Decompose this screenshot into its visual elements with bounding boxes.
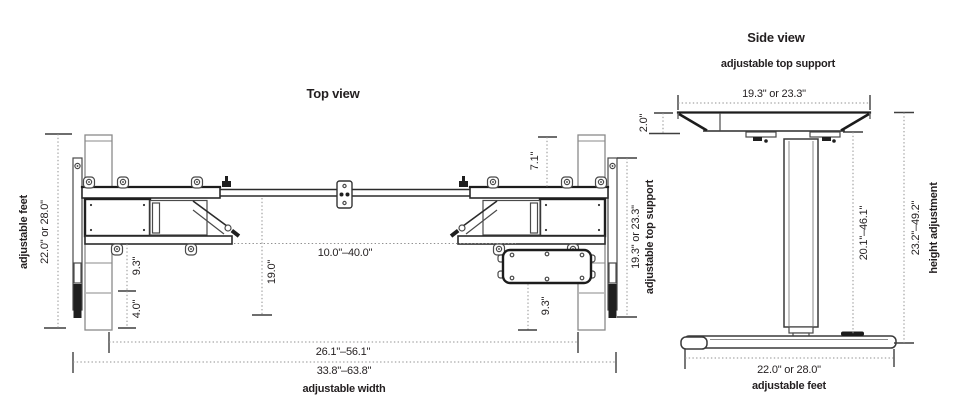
leg-assembly-left xyxy=(73,135,240,330)
dim-height-adjustment: 23.2"–49.2" height adjustment xyxy=(894,113,940,344)
height-adjustment-label: height adjustment xyxy=(928,182,940,274)
diagram-svg: Top view xyxy=(0,0,976,419)
control-box-inset-value: 9.3" xyxy=(540,297,552,316)
side-adjustable-feet-label: adjustable feet xyxy=(752,380,827,392)
desk-frame-dimension-diagram: Top view xyxy=(0,0,976,419)
feet-depth-value: 22.0" or 28.0" xyxy=(39,200,51,264)
dim-frame-depth: 19.0" xyxy=(252,198,278,315)
foot-extension-value: 4.0" xyxy=(131,300,143,319)
control-box xyxy=(498,250,595,283)
crossbar-range-value: 10.0"–40.0" xyxy=(318,247,373,259)
top-thickness-value: 2.0" xyxy=(638,114,650,133)
side-view-subtitle: adjustable top support xyxy=(721,58,836,70)
dim-outer-width: 33.8"–63.8" adjustable width xyxy=(73,352,616,395)
top-view-title: Top view xyxy=(306,86,360,101)
dim-rail-offset: 7.1" xyxy=(529,137,557,187)
side-view: Side view adjustable top support 19.3" o… xyxy=(638,30,940,392)
column-travel-value: 20.1"–46.1" xyxy=(858,205,870,260)
outer-width-value: 33.8"–63.8" xyxy=(317,365,372,377)
rail-offset-value: 7.1" xyxy=(529,152,541,171)
dim-side-top-support: 19.3" or 23.3" xyxy=(678,88,870,110)
dim-foot-extension: 4.0" xyxy=(118,291,143,328)
inner-width-value: 26.1"–56.1" xyxy=(316,346,371,358)
side-feet-value: 22.0" or 28.0" xyxy=(757,364,821,376)
dim-top-thickness: 2.0" xyxy=(638,113,680,134)
frame-depth-value: 19.0" xyxy=(266,260,278,285)
dim-inner-width: 26.1"–56.1" xyxy=(109,332,578,358)
top-support-beam xyxy=(678,113,870,143)
bottom-rail xyxy=(85,236,232,244)
center-mount-plate xyxy=(337,181,352,208)
motor-frame xyxy=(85,199,207,236)
dim-column-travel: 20.1"–46.1" xyxy=(843,132,870,334)
dim-feet-depth: adjustable feet 22.0" or 28.0" xyxy=(18,134,72,328)
adjustable-feet-label: adjustable feet xyxy=(18,194,30,269)
side-foot xyxy=(681,332,896,350)
dim-control-box-inset: 9.3" xyxy=(518,284,552,330)
lifting-column xyxy=(784,139,818,337)
side-view-title: Side view xyxy=(747,30,806,45)
dim-top-support: 19.3" or 23.3" adjustable top support xyxy=(617,158,656,317)
adjustable-top-support-label: adjustable top support xyxy=(644,179,656,294)
height-travel-value: 23.2"–49.2" xyxy=(910,200,922,255)
dim-crossbar-range: 10.0"–40.0" xyxy=(234,244,516,260)
foot-inset-value: 9.3" xyxy=(131,257,143,276)
top-view: Top view xyxy=(18,86,656,395)
dim-side-feet: 22.0" or 28.0" adjustable feet xyxy=(685,349,894,392)
top-support-range-value: 19.3" or 23.3" xyxy=(630,205,642,269)
side-top-support-value: 19.3" or 23.3" xyxy=(742,88,806,100)
mount-ears-bottom xyxy=(112,244,197,255)
adjustable-width-label: adjustable width xyxy=(303,383,386,395)
